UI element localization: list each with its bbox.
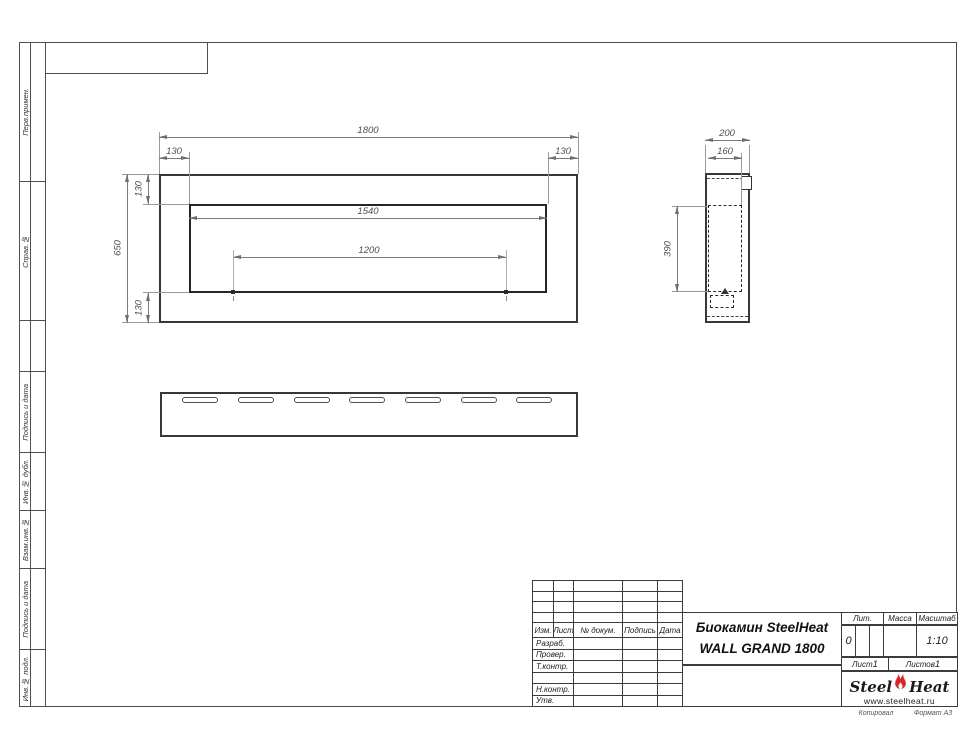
margin-label: Инв.№ подл. (21, 656, 30, 701)
mass-label: Масса (884, 613, 917, 625)
stamp-row-tkontr: Т.контр. (533, 661, 574, 673)
format-label: Формат А3 (908, 710, 958, 717)
dim-line-160 (708, 158, 742, 159)
dim-text-200: 200 (719, 128, 735, 139)
dim-line-1200 (233, 257, 506, 258)
stamp-signature-rows: Разраб. Провер. Т.контр. Н.контр. Утв. (532, 637, 683, 707)
dim-text-130-top: 130 (134, 181, 145, 197)
side-burner-block (710, 295, 734, 308)
dim-line-390 (677, 206, 678, 292)
stamp-sheet-row: Лист 1 Листов 1 (841, 657, 958, 671)
margin-cell-inv-podl: Инв.№ подл. (20, 650, 45, 708)
stamp-change-log (532, 580, 683, 613)
dim-text-160: 160 (717, 146, 733, 157)
dim-text-1200: 1200 (358, 245, 379, 256)
margin-cell-podpis-data-2: Подпись и дата (20, 569, 45, 650)
margin-label: Подпись и дата (21, 384, 30, 441)
stamp-col-list: Лист (554, 623, 574, 638)
brand-logo: Steel Heat (850, 673, 950, 695)
side-bracket (741, 176, 752, 190)
burner-mark-right (504, 290, 508, 294)
sheets-value: 1 (935, 659, 940, 670)
stamp-title-cell: Биокамин SteelHeat WALL GRAND 1800 (682, 612, 842, 665)
margin-cell-sprav-no: Справ.№ (20, 182, 45, 321)
scale-label: Масштаб (917, 613, 958, 625)
ext-line (741, 153, 742, 205)
ext-line (143, 204, 189, 205)
centerline (506, 250, 507, 290)
margin-label: Инв.№ дубл. (21, 459, 30, 504)
designation-cell (46, 42, 208, 74)
brand-word-heat: Heat (909, 680, 949, 695)
vent-slot (461, 397, 497, 403)
ext-line (189, 152, 190, 204)
dim-line-130-right (548, 158, 578, 159)
dim-text-130-right: 130 (555, 146, 571, 157)
stamp-col-doc: № докум. (574, 623, 623, 638)
margin-cell-inv-dubl: Инв.№ дубл. (20, 453, 45, 511)
vent-slot (516, 397, 552, 403)
margin-strip: Перв.примен. Справ.№ Подпись и дата Инв.… (19, 42, 46, 707)
vent-slot (405, 397, 441, 403)
dim-line-200 (705, 140, 750, 141)
brand-site: www.steelheat.ru (864, 696, 935, 706)
brand-word-steel: Steel (850, 680, 893, 695)
dim-text-130-left: 130 (166, 146, 182, 157)
margin-cell-perv-primen: Перв.примен. (20, 43, 45, 182)
margin-cell-vzam-inv: Взам.инв.№ (20, 511, 45, 569)
vent-slot (294, 397, 330, 403)
burner-mark-left (231, 290, 235, 294)
ext-line (705, 145, 706, 173)
margin-cell-empty (20, 321, 45, 372)
dim-text-130-bottom: 130 (134, 300, 145, 316)
copied-label: Копировал (846, 710, 906, 717)
dim-line-130-top (148, 174, 149, 204)
dim-line-130-left (159, 158, 189, 159)
drawing-sheet: Перв.примен. Справ.№ Подпись и дата Инв.… (0, 0, 970, 749)
dim-line-650 (127, 174, 128, 323)
stamp-logo-cell: Steel Heat www.steelheat.ru (841, 671, 958, 707)
lit-value: 0 (842, 626, 856, 657)
stamp-lit-header: Лит. Масса Масштаб (841, 612, 958, 625)
dim-text-650: 650 (113, 240, 124, 256)
ext-line (578, 132, 579, 174)
dim-line-1800 (159, 137, 578, 138)
ext-line (749, 145, 750, 173)
doc-title-line2: WALL GRAND 1800 (699, 639, 824, 659)
doc-title-line1: Биокамин SteelHeat (696, 618, 828, 638)
sheet-value: 1 (873, 659, 878, 670)
stamp-row-razrab: Разраб. (533, 638, 574, 650)
stamp-row-empty (533, 673, 574, 685)
stamp-row-utv: Утв. (533, 696, 574, 708)
vent-slot (349, 397, 385, 403)
stamp-row-nkontr: Н.контр. (533, 684, 574, 696)
stamp-col-date: Дата (658, 623, 683, 638)
side-hidden-line-bottom (707, 316, 748, 317)
stamp-col-izm: Изм. (533, 623, 554, 638)
dim-text-1540: 1540 (357, 206, 378, 217)
centerline-dash (506, 296, 507, 301)
centerline-dash (233, 296, 234, 301)
margin-label: Перв.примен. (21, 88, 30, 136)
vent-slot (238, 397, 274, 403)
dim-text-1800: 1800 (357, 125, 378, 136)
dim-line-1540 (189, 218, 547, 219)
sheet-label: Лист (852, 660, 873, 669)
dim-line-130-bottom (148, 293, 149, 323)
lit-label: Лит. (842, 613, 884, 625)
margin-label: Подпись и дата (21, 581, 30, 638)
mass-value (884, 626, 917, 657)
flame-icon (893, 673, 908, 695)
stamp-lit-values: 0 1:10 (841, 625, 958, 657)
scale-value: 1:10 (917, 626, 958, 657)
centerline (233, 250, 234, 290)
side-vent-mark (721, 288, 729, 294)
margin-cell-podpis-data-1: Подпись и дата (20, 372, 45, 453)
side-view-hidden-cavity (708, 205, 742, 292)
margin-label: Взам.инв.№ (21, 518, 30, 561)
margin-label: Справ.№ (21, 235, 30, 268)
stamp-row-prover: Провер. (533, 650, 574, 662)
vent-slot (182, 397, 218, 403)
stamp-org-cell (682, 665, 842, 707)
stamp-col-sign: Подпись (623, 623, 658, 638)
dim-text-390: 390 (663, 241, 674, 257)
stamp-header-row: Изм. Лист № докум. Подпись Дата (532, 622, 683, 638)
sheets-label: Листов (906, 660, 935, 669)
